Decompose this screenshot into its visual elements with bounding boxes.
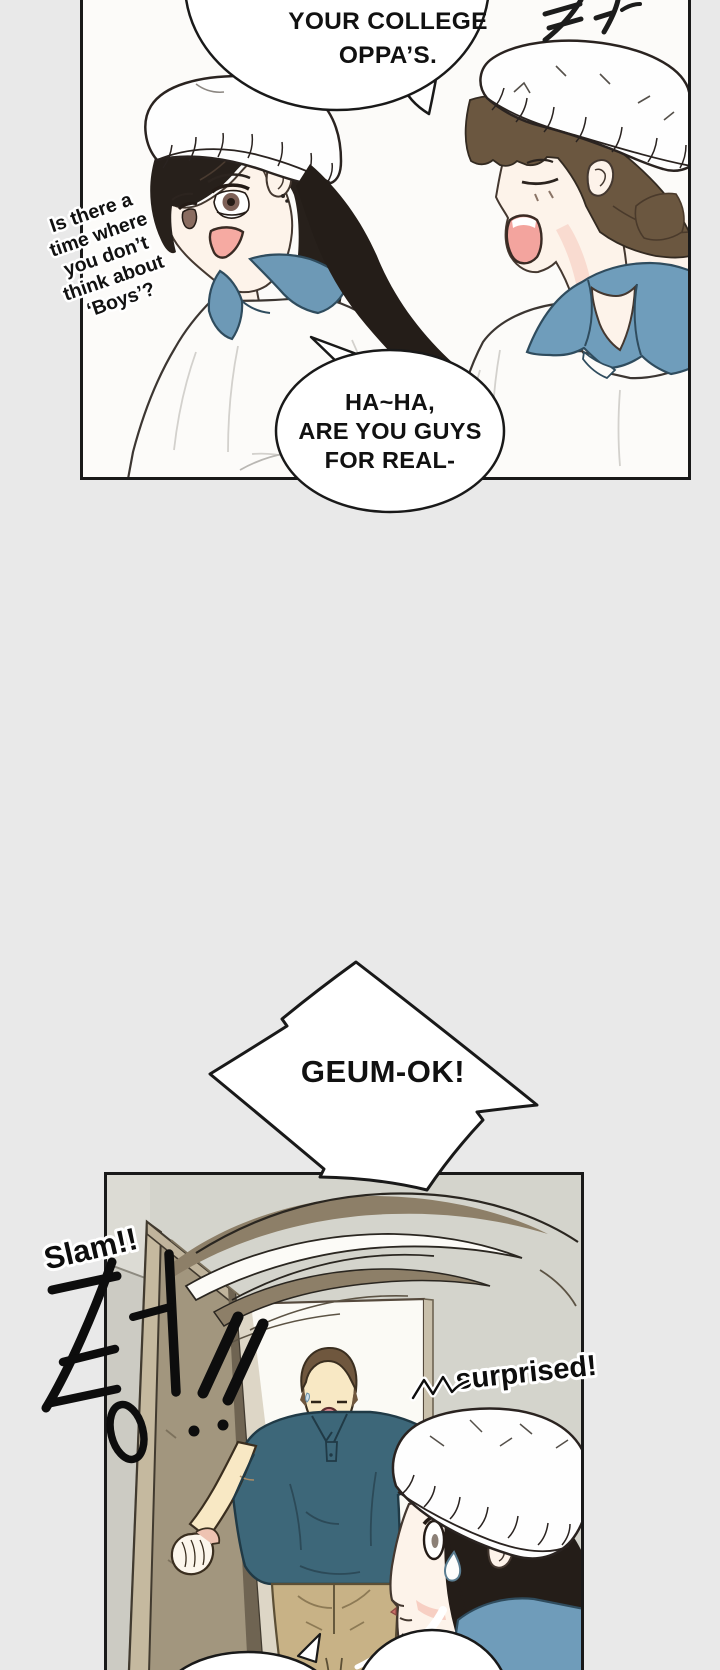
svg-text:ARE YOU GUYS: ARE YOU GUYS xyxy=(298,418,481,444)
svg-text:GEUM-OK!: GEUM-OK! xyxy=(301,1054,465,1089)
svg-text:OPPA’S.: OPPA’S. xyxy=(339,42,437,69)
svg-text:HA~HA,: HA~HA, xyxy=(345,389,435,415)
svg-text:FOR REAL-: FOR REAL- xyxy=(325,447,456,473)
svg-text:YOUR COLLEGE: YOUR COLLEGE xyxy=(288,8,488,35)
